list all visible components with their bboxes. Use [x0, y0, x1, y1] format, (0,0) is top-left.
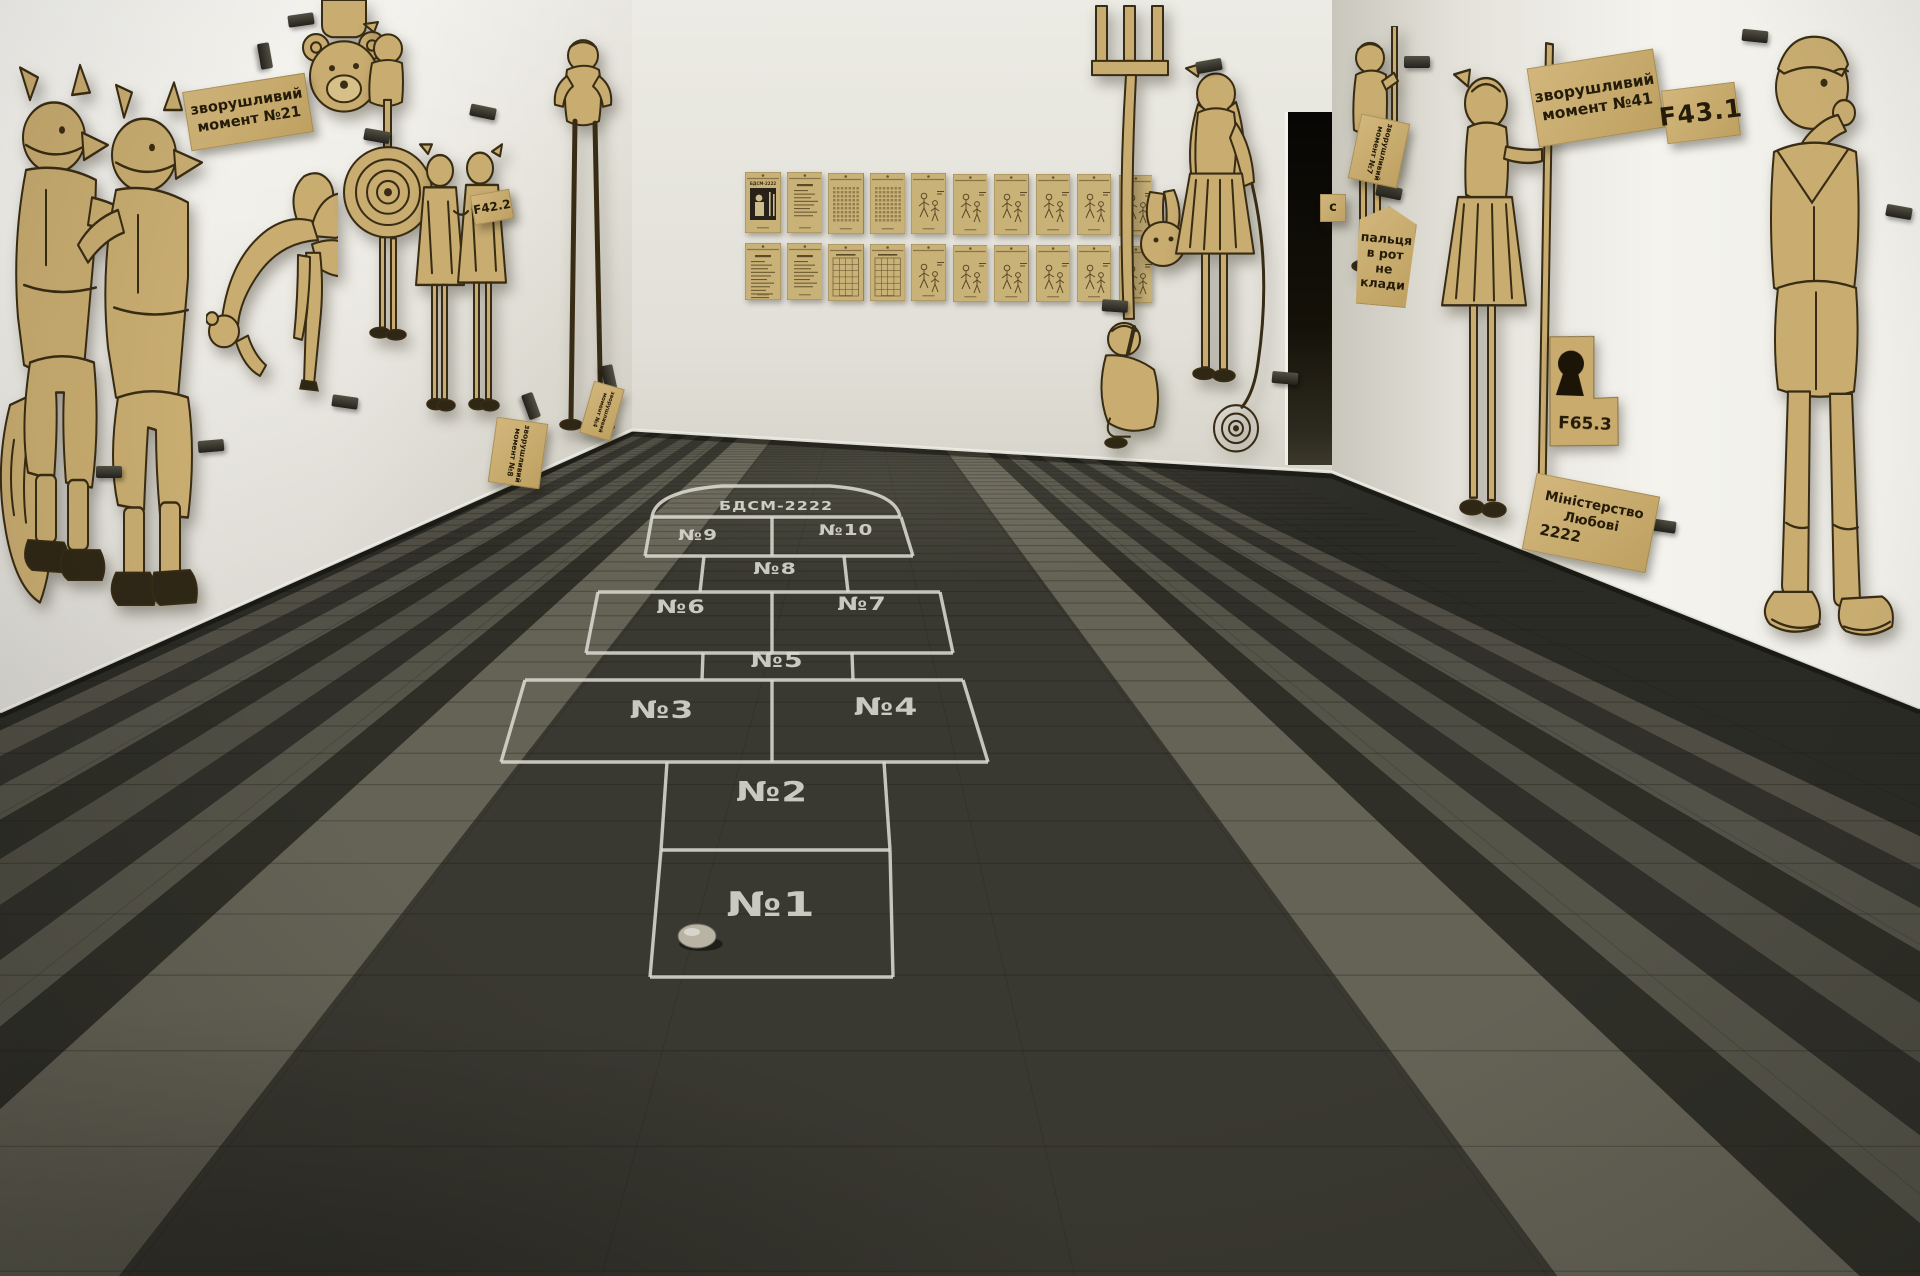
court-line — [702, 653, 703, 680]
court-cell-label: №2 — [736, 776, 808, 808]
cutout-braid-girl-with-coil — [1152, 62, 1282, 462]
pebble — [678, 924, 716, 948]
mounting-bracket — [1404, 56, 1430, 68]
poster-page-table — [828, 244, 864, 301]
poster-page-text — [787, 172, 823, 233]
court-line — [650, 850, 661, 977]
court-line — [700, 556, 704, 592]
court-line — [586, 592, 598, 653]
mounting-bracket — [96, 466, 122, 478]
poster-page-pattern — [870, 173, 905, 234]
court-cell-label: №8 — [753, 559, 797, 578]
court-line — [645, 517, 652, 556]
court-cell-label: №9 — [678, 527, 718, 544]
poster-page-figures — [1036, 245, 1070, 302]
cutout-stilt-child — [543, 35, 635, 440]
court-cell-label: №3 — [630, 695, 695, 724]
gallery-room-photo: БДСМ-2222№1№2№3№4№5№6№7№8№9№10 БДСМ-2222 — [0, 0, 1920, 1276]
poster-page-figures — [994, 174, 1029, 235]
court-cell-label: №1 — [726, 884, 815, 924]
cutout-bending-ballerina — [206, 170, 338, 395]
sign-f431: F43.1 — [1661, 82, 1741, 145]
court-line — [940, 592, 953, 653]
sign-4-text: зворушливиймомент №4 — [589, 389, 615, 434]
mounting-bracket — [198, 439, 225, 453]
court-line — [901, 517, 913, 556]
f422-label: F42.2 — [472, 197, 512, 218]
poster-page-text — [787, 243, 823, 300]
corridor-doorway — [1288, 112, 1332, 465]
court-line — [890, 850, 893, 977]
svg-text:БДСМ-2222: БДСМ-2222 — [750, 181, 777, 186]
court-line — [844, 556, 848, 592]
keyhole-plaque: F65.3 — [1538, 333, 1626, 452]
poster-page-cover: БДСМ-2222 — [745, 172, 781, 233]
court-line — [661, 762, 667, 850]
mounting-bracket — [1741, 29, 1768, 44]
poster-page-figures — [911, 244, 946, 301]
court-cell-label: №10 — [819, 522, 874, 539]
sign-moment-8: зворушливиймомент №8 — [488, 417, 549, 490]
poster-page-figures — [953, 174, 988, 235]
court-line — [852, 653, 853, 680]
mounting-bracket — [1272, 371, 1299, 385]
court-cell-label: №6 — [656, 597, 705, 618]
sign-8-text: зворушливиймомент №8 — [504, 423, 532, 484]
mounting-bracket — [1102, 299, 1129, 313]
court-line — [501, 680, 525, 762]
court-line — [963, 680, 988, 762]
f653-label: F65.3 — [1558, 413, 1612, 435]
court-line — [884, 762, 890, 850]
court-cell-label: №7 — [837, 594, 886, 615]
poster-page-list — [745, 243, 781, 300]
poster-page-figures — [953, 245, 988, 302]
sign-7-text: зворушливиймомент №7 — [1363, 120, 1395, 181]
poster-page-figures — [994, 245, 1029, 302]
poster-page-table — [870, 244, 905, 301]
poster-page-figures — [1036, 174, 1070, 235]
sign-letter-c: с — [1320, 194, 1346, 222]
poster-page-pattern — [828, 173, 864, 234]
cutout-two-girls — [414, 142, 510, 422]
court-title: БДСМ-2222 — [719, 499, 833, 513]
poster-page-figures — [911, 173, 946, 234]
court-cell-label: №4 — [854, 692, 919, 721]
court-cell-label: №5 — [750, 648, 803, 672]
